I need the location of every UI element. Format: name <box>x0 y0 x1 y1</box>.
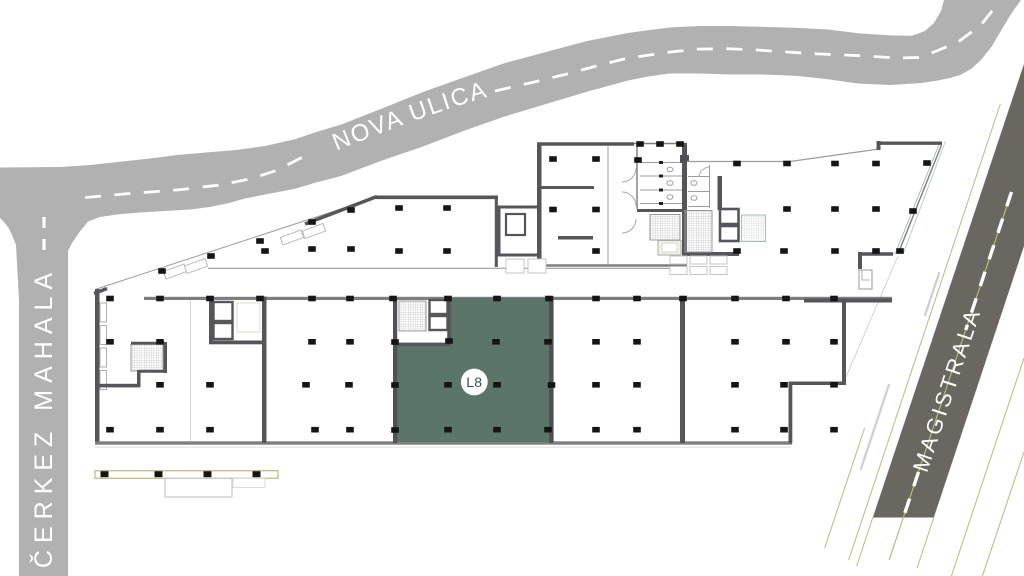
svg-text:ČERKEZ MAHALA: ČERKEZ MAHALA <box>29 266 58 568</box>
svg-text:L8: L8 <box>466 374 482 390</box>
